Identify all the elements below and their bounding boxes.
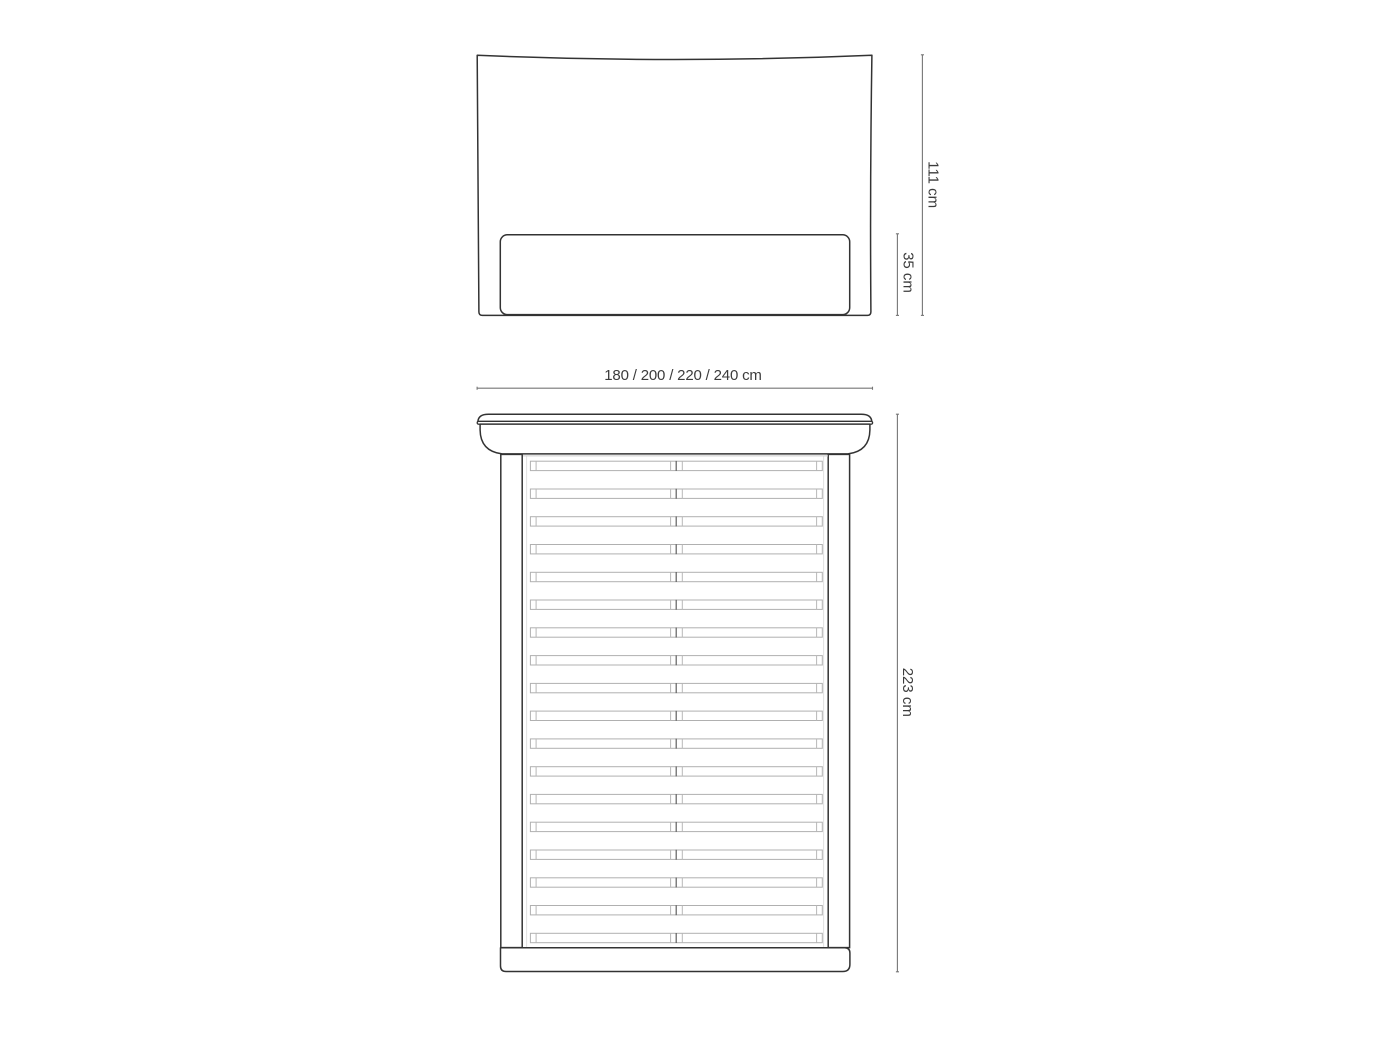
svg-text:111 cm: 111 cm xyxy=(925,161,942,208)
svg-text:180 / 200 / 220 / 240 cm: 180 / 200 / 220 / 240 cm xyxy=(604,367,761,384)
svg-text:223 cm: 223 cm xyxy=(899,668,916,717)
svg-text:35 cm: 35 cm xyxy=(900,252,917,293)
